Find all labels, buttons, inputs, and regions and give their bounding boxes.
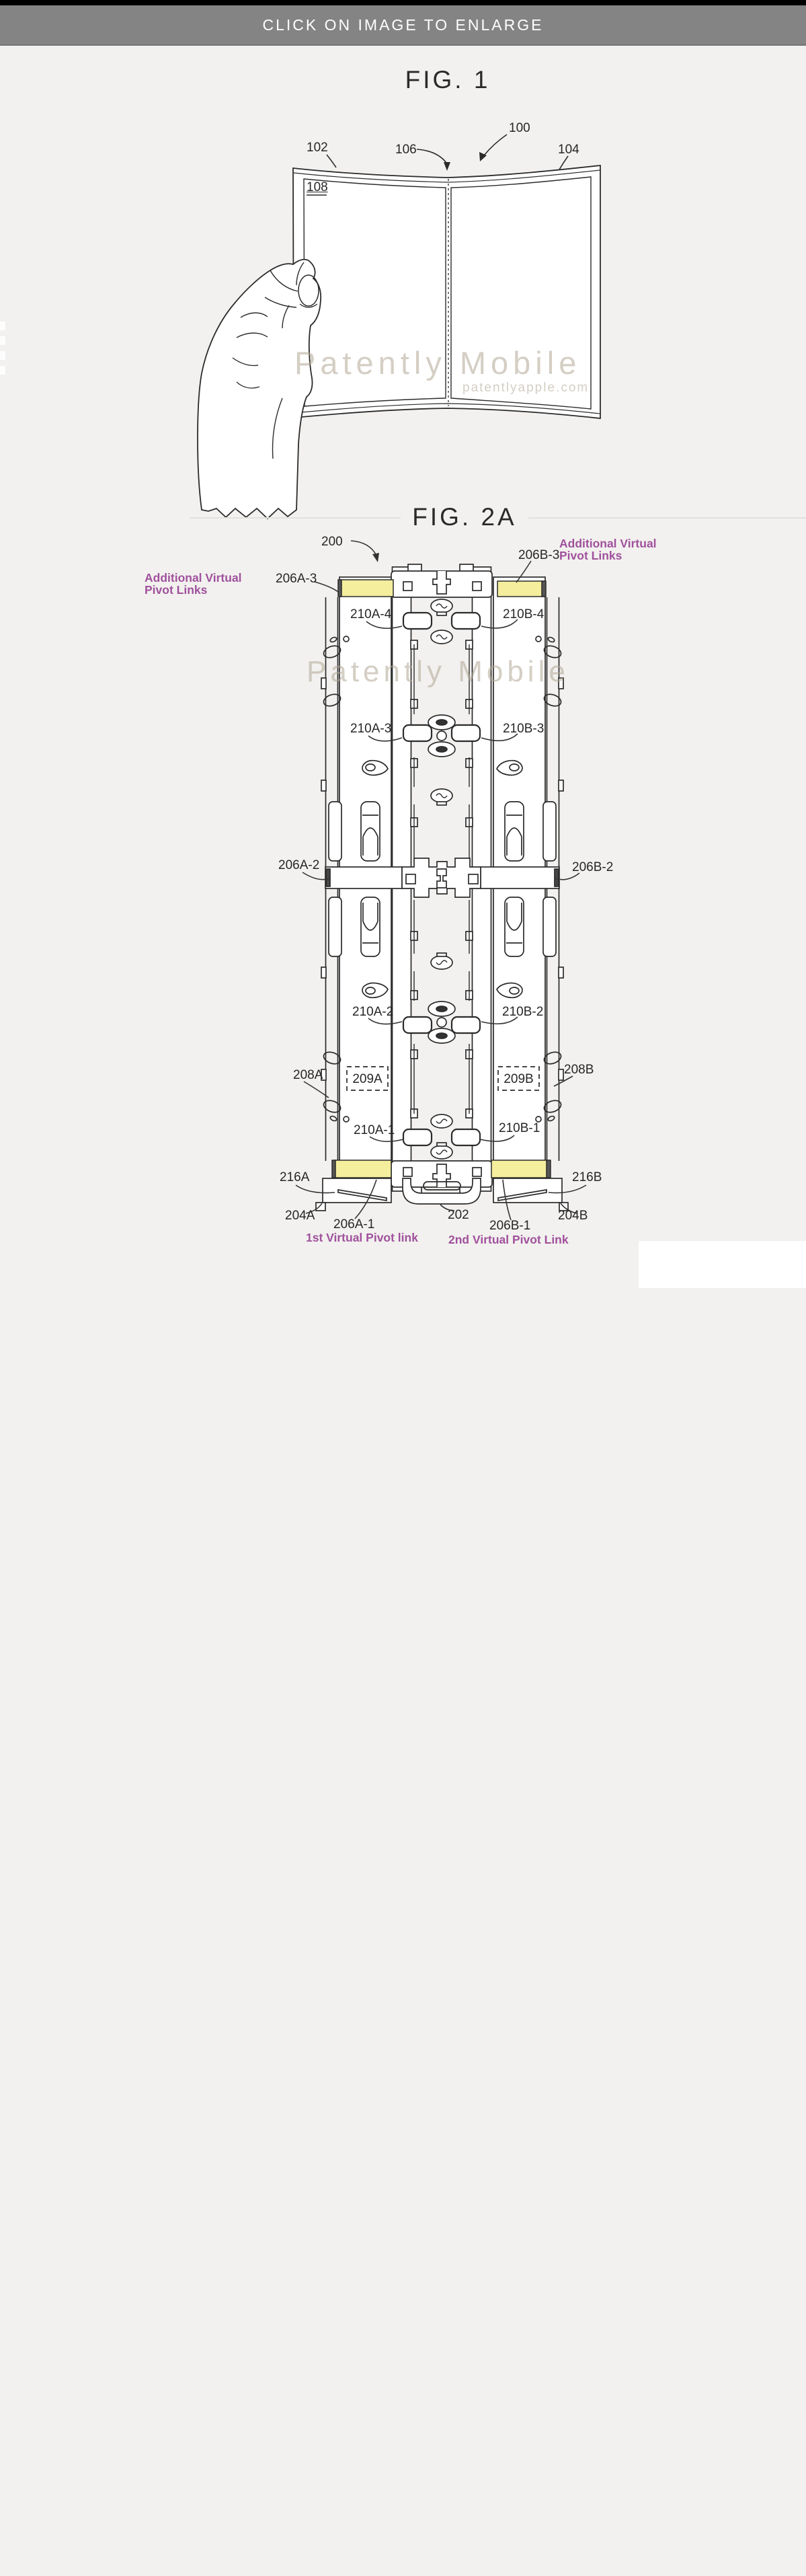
fig1-label-104: 104 [558,143,579,157]
fig2a-label-216a: 216A [280,1170,309,1185]
fig2a-label-210b4: 210B-4 [503,607,544,622]
fig2a-label-206a1: 206A-1 [333,1217,374,1232]
fig2a-label-210b2: 210B-2 [502,1005,543,1020]
fig2a-label-204a: 204A [285,1209,315,1223]
fig2a-label-210a1: 210A-1 [354,1123,395,1138]
fig2a-label-204b: 204B [558,1209,588,1223]
fig2a-label-202: 202 [448,1208,469,1223]
fig2a-label-209b: 209B [498,1072,539,1087]
watermark-patently-mobile: Patently Mobile [294,344,581,381]
fig2a-label-206a2: 206A-2 [278,858,319,873]
fig2a-label-209a: 209A [347,1072,388,1087]
annotation-2nd-virtual-pivot-link: 2nd Virtual Pivot Link [448,1233,569,1247]
fig2a-hinge-assembly [296,541,586,1220]
fig2a-title: FIG. 2A [401,503,528,531]
fig1-label-102: 102 [307,141,328,155]
fig2a-label-210a2: 210A-2 [352,1005,393,1020]
site-logo-box[interactable]: 精选手游网 www.tzymjx.net [639,1241,806,1288]
fig1-label-100: 100 [509,121,530,136]
fig2a-label-206a3: 206A-3 [276,572,317,586]
watermark-patently-mobile-2: Patently Mobile [307,655,569,689]
fig1-title: FIG. 1 [377,66,518,94]
watermark-patentlyapple: patentlyapple.com [462,381,589,395]
fig1-hand [198,260,321,519]
annotation-1st-virtual-pivot-link: 1st Virtual Pivot link [306,1231,418,1245]
fig2a-label-210b3: 210B-3 [503,722,544,736]
annotation-additional-virtual-right-2: Pivot Links [559,549,622,563]
fig2a-label-208b: 208B [564,1063,594,1077]
fig1-leaders [327,135,568,171]
fig2a-label-210b1: 210B-1 [499,1121,540,1136]
fig2a-label-208a: 208A [293,1068,323,1083]
annotation-additional-virtual-left-2: Pivot Links [145,583,207,597]
fig2a-label-210a3: 210A-3 [350,722,391,736]
arrowhead [372,553,379,562]
fig2a-label-216b: 216B [572,1170,602,1185]
fig2a-label-206b2: 206B-2 [572,860,613,875]
fig2a-label-206b1: 206B-1 [489,1219,530,1234]
fig1-label-108: 108 [307,180,328,195]
page: { "header": { "label": "CLICK ON IMAGE T… [0,0,806,1288]
patent-figure-art[interactable] [0,0,806,1288]
fig2a-label-200: 200 [321,535,343,550]
fig2a-label-210a4: 210A-4 [350,607,391,622]
fig1-label-106: 106 [395,143,417,157]
arrowhead [444,162,450,171]
fig2a-label-206b3: 206B-3 [518,548,559,563]
